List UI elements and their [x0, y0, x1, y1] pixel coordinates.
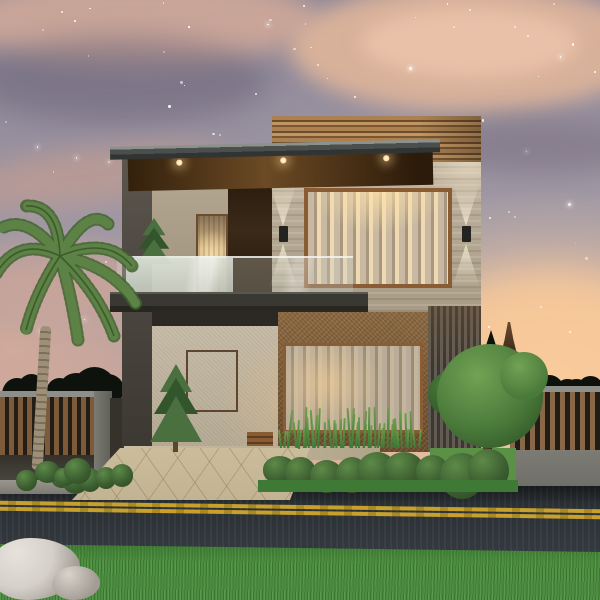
star — [108, 161, 110, 163]
star — [163, 51, 165, 53]
star — [482, 119, 485, 122]
star — [89, 8, 90, 9]
star — [572, 43, 575, 46]
star — [409, 67, 411, 69]
palm-base-bush — [14, 448, 92, 486]
shrub-clump — [64, 458, 91, 484]
star — [569, 331, 571, 333]
star — [305, 23, 306, 24]
house-render-scene — [0, 0, 600, 600]
star — [514, 26, 516, 28]
star — [163, 2, 164, 3]
wall-sconce-icon — [279, 226, 288, 242]
recessed-downlight — [280, 157, 287, 164]
palm-frond-group — [0, 206, 136, 340]
star — [568, 203, 571, 206]
star — [508, 211, 511, 214]
star — [293, 48, 295, 50]
shrub-clump — [111, 464, 133, 486]
inter-floor-canopy — [110, 292, 368, 312]
star — [303, 5, 305, 7]
star — [585, 257, 587, 259]
star — [310, 47, 311, 48]
star — [489, 217, 492, 220]
star — [540, 306, 542, 308]
spruce-tree — [146, 362, 206, 454]
star — [415, 17, 416, 18]
star — [37, 146, 38, 147]
star — [76, 157, 77, 158]
star — [488, 326, 489, 327]
star — [74, 20, 76, 22]
star — [514, 216, 515, 217]
sconce-light-beam — [452, 244, 480, 288]
star — [88, 55, 89, 56]
star — [560, 56, 562, 58]
fence-base-wall — [510, 450, 600, 488]
wall-sconce-icon — [462, 226, 471, 242]
star — [553, 3, 555, 5]
star — [5, 121, 7, 123]
star — [61, 11, 63, 13]
star — [575, 243, 576, 244]
star — [168, 105, 170, 107]
star — [53, 171, 54, 172]
star — [526, 151, 527, 152]
fence-slats — [0, 397, 96, 455]
sconce-light-beam — [452, 182, 480, 226]
star — [267, 24, 268, 25]
star — [184, 85, 185, 86]
recessed-downlight — [176, 159, 183, 166]
star — [269, 19, 272, 22]
star — [317, 64, 319, 66]
star — [354, 96, 356, 98]
star — [219, 134, 221, 136]
palm-tree-fronds — [0, 188, 148, 354]
star — [212, 133, 214, 135]
star — [180, 81, 183, 84]
star — [42, 29, 44, 31]
sconce-light-beam — [269, 182, 297, 226]
shrub-clump — [16, 470, 36, 492]
star — [327, 78, 328, 79]
star — [447, 3, 448, 4]
star — [527, 35, 529, 37]
star — [469, 9, 471, 11]
star — [188, 26, 190, 28]
star — [594, 71, 596, 73]
star — [453, 26, 455, 28]
grass-verge — [258, 480, 518, 492]
fence-cap-rail — [0, 391, 96, 397]
round-tree-foliage — [500, 352, 548, 400]
star — [255, 93, 257, 95]
recessed-downlight — [383, 155, 390, 162]
star — [538, 76, 539, 77]
glass-balustrade — [117, 256, 353, 296]
